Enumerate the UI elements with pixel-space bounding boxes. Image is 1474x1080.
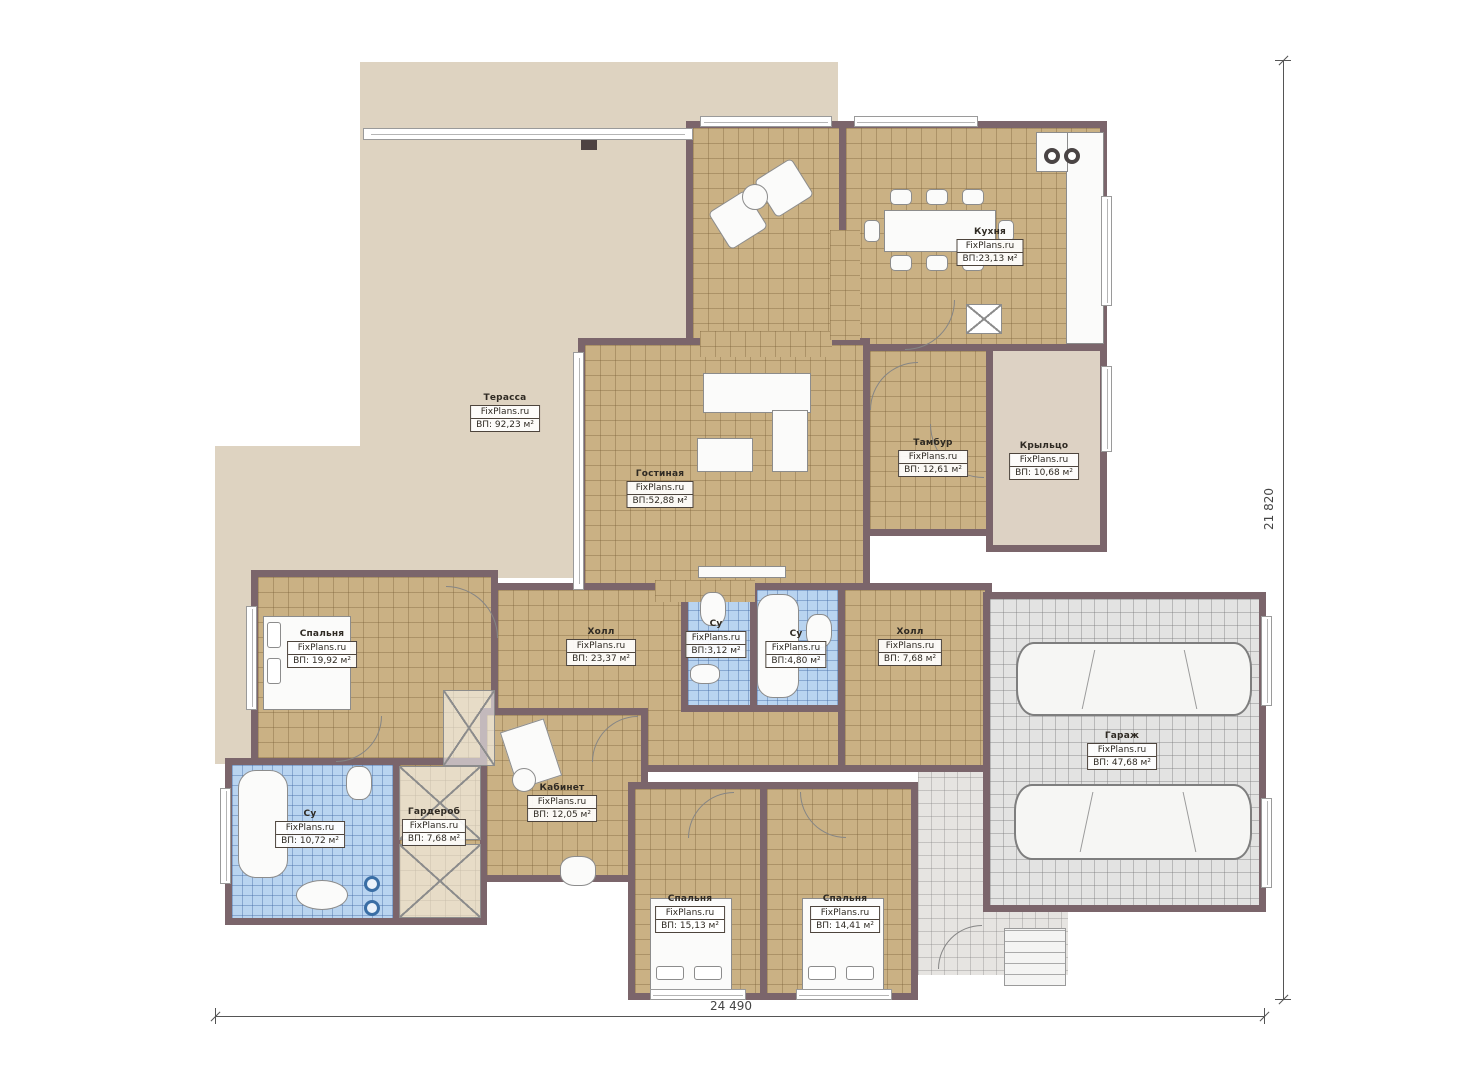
pillow xyxy=(656,966,684,980)
pillow xyxy=(808,966,836,980)
tv-stand xyxy=(698,566,786,578)
room-label-wc-1: Су FixPlans.ru ВП:3,12 м² xyxy=(685,618,746,658)
room-label-hall-main: Холл FixPlans.ru ВП: 23,37 м² xyxy=(566,626,636,666)
opening xyxy=(830,230,860,340)
room-label-living: Гостиная FixPlans.ru ВП:52,88 м² xyxy=(627,468,694,508)
room-label-garage: Гараж FixPlans.ru ВП: 47,68 м² xyxy=(1087,730,1157,770)
chair xyxy=(864,220,880,242)
window xyxy=(1101,366,1112,452)
room-name: Тамбур xyxy=(898,437,968,449)
window xyxy=(246,606,257,710)
terrace-area xyxy=(360,124,690,350)
brand-watermark: FixPlans.ru xyxy=(403,820,465,832)
room-hall-2 xyxy=(838,583,992,772)
pillow xyxy=(846,966,874,980)
closet xyxy=(443,690,495,766)
steps xyxy=(1004,928,1066,986)
room-area: ВП: 12,61 м² xyxy=(899,463,967,476)
brand-watermark: FixPlans.ru xyxy=(528,796,596,808)
brand-watermark: FixPlans.ru xyxy=(811,907,879,919)
room-area: ВП:23,13 м² xyxy=(958,252,1023,265)
window xyxy=(1261,616,1272,706)
toilet xyxy=(346,766,372,800)
window xyxy=(220,788,231,884)
stove-burner-icon xyxy=(1044,148,1060,164)
pillow xyxy=(267,658,281,684)
room-name: Кабинет xyxy=(527,782,597,794)
kitchen-sink xyxy=(966,304,1002,334)
room-label-bedroom-1: Спальня FixPlans.ru ВП: 19,92 м² xyxy=(287,628,357,668)
room-area: ВП: 10,72 м² xyxy=(276,834,344,847)
dimension-width: 24 490 xyxy=(710,999,752,1013)
chair xyxy=(890,189,912,205)
opening xyxy=(700,331,832,357)
room-label-wc-2: Су FixPlans.ru ВП:4,80 м² xyxy=(765,628,826,668)
floor-plan: Терасса FixPlans.ru ВП: 92,23 м² Кухня F… xyxy=(0,0,1474,1080)
room-area: ВП: 10,68 м² xyxy=(1010,466,1078,479)
room-name: Терасса xyxy=(470,392,540,404)
room-label-kitchen: Кухня FixPlans.ru ВП:23,13 м² xyxy=(957,226,1024,266)
brand-watermark: FixPlans.ru xyxy=(567,640,635,652)
sofa xyxy=(703,373,811,413)
washer-icon xyxy=(364,876,380,892)
coffee-table xyxy=(697,438,753,472)
brand-watermark: FixPlans.ru xyxy=(899,451,967,463)
room-area: ВП: 7,68 м² xyxy=(403,832,465,845)
sink xyxy=(690,664,720,684)
sink xyxy=(296,880,348,910)
brand-watermark: FixPlans.ru xyxy=(766,642,825,654)
terrace-area xyxy=(215,446,582,578)
room-area: ВП: 92,23 м² xyxy=(471,418,539,431)
room-area: ВП:4,80 м² xyxy=(766,654,825,667)
brand-watermark: FixPlans.ru xyxy=(1010,454,1078,466)
car xyxy=(1016,642,1252,716)
room-label-office: Кабинет FixPlans.ru ВП: 12,05 м² xyxy=(527,782,597,822)
window xyxy=(796,989,892,1000)
brand-watermark: FixPlans.ru xyxy=(276,822,344,834)
room-name: Спальня xyxy=(655,893,725,905)
chair xyxy=(926,255,948,271)
room-name: Гардероб xyxy=(402,806,466,818)
room-label-tambur: Тамбур FixPlans.ru ВП: 12,61 м² xyxy=(898,437,968,477)
room-label-hall-2: Холл FixPlans.ru ВП: 7,68 м² xyxy=(878,626,942,666)
chair xyxy=(962,189,984,205)
room-name: Холл xyxy=(566,626,636,638)
room-name: Спальня xyxy=(287,628,357,640)
brand-watermark: FixPlans.ru xyxy=(656,907,724,919)
wardrobe-unit xyxy=(399,844,481,918)
room-area: ВП: 14,41 м² xyxy=(811,919,879,932)
washer-icon xyxy=(364,900,380,916)
pillow xyxy=(267,622,281,648)
room-area: ВП: 23,37 м² xyxy=(567,652,635,665)
room-name: Су xyxy=(685,618,746,630)
room-name: Гостиная xyxy=(627,468,694,480)
sink xyxy=(560,856,596,886)
dimension-line-bottom xyxy=(215,1016,1265,1017)
room-area: ВП:3,12 м² xyxy=(686,644,745,657)
chair xyxy=(926,189,948,205)
room-label-terrace: Терасса FixPlans.ru ВП: 92,23 м² xyxy=(470,392,540,432)
window xyxy=(1261,798,1272,888)
window xyxy=(854,116,978,127)
room-name: Крыльцо xyxy=(1009,440,1079,452)
dimension-height: 21 820 xyxy=(1262,488,1276,530)
room-name: Кухня xyxy=(957,226,1024,238)
room-name: Су xyxy=(275,808,345,820)
window xyxy=(700,116,832,127)
room-label-porch: Крыльцо FixPlans.ru ВП: 10,68 м² xyxy=(1009,440,1079,480)
brand-watermark: FixPlans.ru xyxy=(628,482,693,494)
room-label-bedroom-3: Спальня FixPlans.ru ВП: 14,41 м² xyxy=(810,893,880,933)
room-name: Су xyxy=(765,628,826,640)
room-name: Спальня xyxy=(810,893,880,905)
brand-watermark: FixPlans.ru xyxy=(879,640,941,652)
brand-watermark: FixPlans.ru xyxy=(958,240,1023,252)
stove-burner-icon xyxy=(1064,148,1080,164)
brand-watermark: FixPlans.ru xyxy=(1088,744,1156,756)
room-area: ВП:52,88 м² xyxy=(628,494,693,507)
pillow xyxy=(694,966,722,980)
brand-watermark: FixPlans.ru xyxy=(686,632,745,644)
room-name: Холл xyxy=(878,626,942,638)
brand-watermark: FixPlans.ru xyxy=(288,642,356,654)
room-label-bathroom: Су FixPlans.ru ВП: 10,72 м² xyxy=(275,808,345,848)
room-area: ВП: 12,05 м² xyxy=(528,808,596,821)
room-label-bedroom-2: Спальня FixPlans.ru ВП: 15,13 м² xyxy=(655,893,725,933)
room-area: ВП: 19,92 м² xyxy=(288,654,356,667)
sofa xyxy=(772,410,808,472)
room-area: ВП: 15,13 м² xyxy=(656,919,724,932)
room-label-wardrobe: Гардероб FixPlans.ru ВП: 7,68 м² xyxy=(402,806,466,846)
glass-wall xyxy=(573,352,584,590)
side-table xyxy=(742,184,768,210)
window xyxy=(1101,196,1112,306)
glass-wall xyxy=(363,128,693,140)
chair xyxy=(890,255,912,271)
room-area: ВП: 47,68 м² xyxy=(1088,756,1156,769)
room-dining xyxy=(686,121,846,351)
brand-watermark: FixPlans.ru xyxy=(471,406,539,418)
dimension-line-right xyxy=(1283,60,1284,1000)
room-name: Гараж xyxy=(1087,730,1157,742)
car xyxy=(1014,784,1252,860)
room-area: ВП: 7,68 м² xyxy=(879,652,941,665)
